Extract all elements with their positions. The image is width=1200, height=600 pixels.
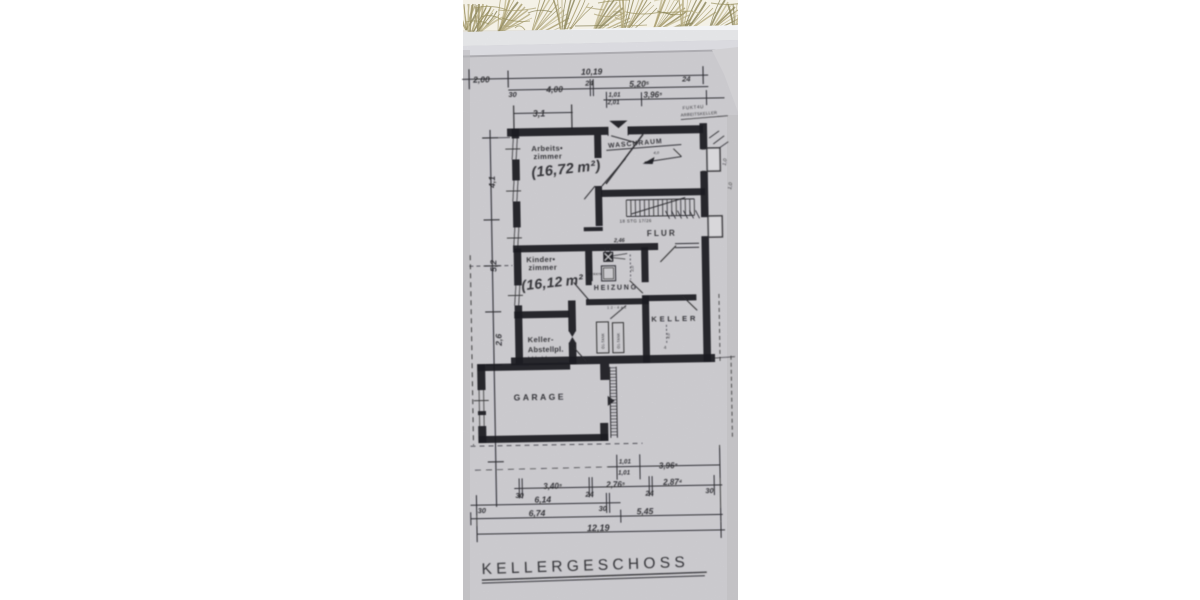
svg-text:Ö1-TANK: Ö1-TANK — [617, 332, 621, 348]
svg-text:24: 24 — [584, 79, 594, 88]
svg-text:zimmer: zimmer — [533, 152, 562, 161]
svg-text:18 STG 17/26: 18 STG 17/26 — [620, 218, 652, 224]
svg-text:12,19: 12,19 — [587, 523, 610, 533]
svg-text:1,01: 1,01 — [618, 469, 631, 476]
svg-text:1,01: 1,01 — [619, 458, 632, 465]
svg-text:FLUR: FLUR — [647, 229, 677, 239]
svg-text:1,01: 1,01 — [608, 92, 621, 99]
svg-text:2,46: 2,46 — [613, 238, 626, 244]
svg-text:30: 30 — [515, 491, 524, 500]
svg-text:Ö1-TANK: Ö1-TANK — [601, 333, 605, 349]
svg-text:6,74: 6,74 — [529, 508, 546, 518]
svg-text:5,20⁵: 5,20⁵ — [629, 79, 650, 89]
svg-text:2,76⁵: 2,76⁵ — [605, 480, 625, 489]
svg-text:Keller-: Keller- — [528, 335, 554, 344]
svg-text:4,0: 4,0 — [653, 150, 659, 155]
svg-text:2,00: 2,00 — [472, 74, 490, 84]
svg-text:24: 24 — [681, 74, 691, 83]
svg-text:5,45: 5,45 — [637, 506, 654, 516]
svg-text:2,0: 2,0 — [629, 265, 634, 272]
svg-text:2,6: 2,6 — [494, 334, 504, 347]
svg-text:Abstellpl.: Abstellpl. — [528, 345, 564, 355]
svg-text:30: 30 — [705, 486, 714, 495]
svg-text:KELLER: KELLER — [651, 314, 698, 324]
svg-text:24: 24 — [644, 489, 654, 498]
svg-text:zimmer: zimmer — [528, 263, 557, 272]
svg-text:2,87⁴: 2,87⁴ — [662, 478, 682, 487]
svg-text:3,96⁵: 3,96⁵ — [643, 90, 662, 99]
svg-text:1,0: 1,0 — [727, 182, 734, 190]
svg-text:· 1 4 1 · 1 4 ·: · 1 4 1 · 1 4 · — [525, 355, 550, 359]
svg-text:GARAGE: GARAGE — [514, 392, 566, 403]
svg-text:24: 24 — [584, 490, 594, 499]
svg-text:6,14: 6,14 — [534, 494, 551, 504]
svg-text:3,1: 3,1 — [533, 108, 546, 118]
svg-text:3,96⁵: 3,96⁵ — [659, 461, 678, 470]
svg-text:30: 30 — [478, 506, 487, 515]
svg-text:1,0: 1,0 — [722, 158, 729, 166]
svg-text:30: 30 — [599, 504, 608, 513]
svg-text:4,1: 4,1 — [487, 176, 497, 189]
svg-text:30: 30 — [508, 90, 517, 99]
svg-text:4,0: 4,0 — [666, 332, 671, 338]
svg-text:4,00: 4,00 — [545, 84, 563, 94]
svg-text:2,01: 2,01 — [606, 99, 620, 106]
svg-text:Junkers: Junkers — [588, 272, 602, 276]
svg-text:3,40⁵: 3,40⁵ — [543, 482, 562, 491]
svg-text:10,19: 10,19 — [581, 66, 603, 76]
svg-text:HEIZUNG: HEIZUNG — [594, 284, 638, 292]
